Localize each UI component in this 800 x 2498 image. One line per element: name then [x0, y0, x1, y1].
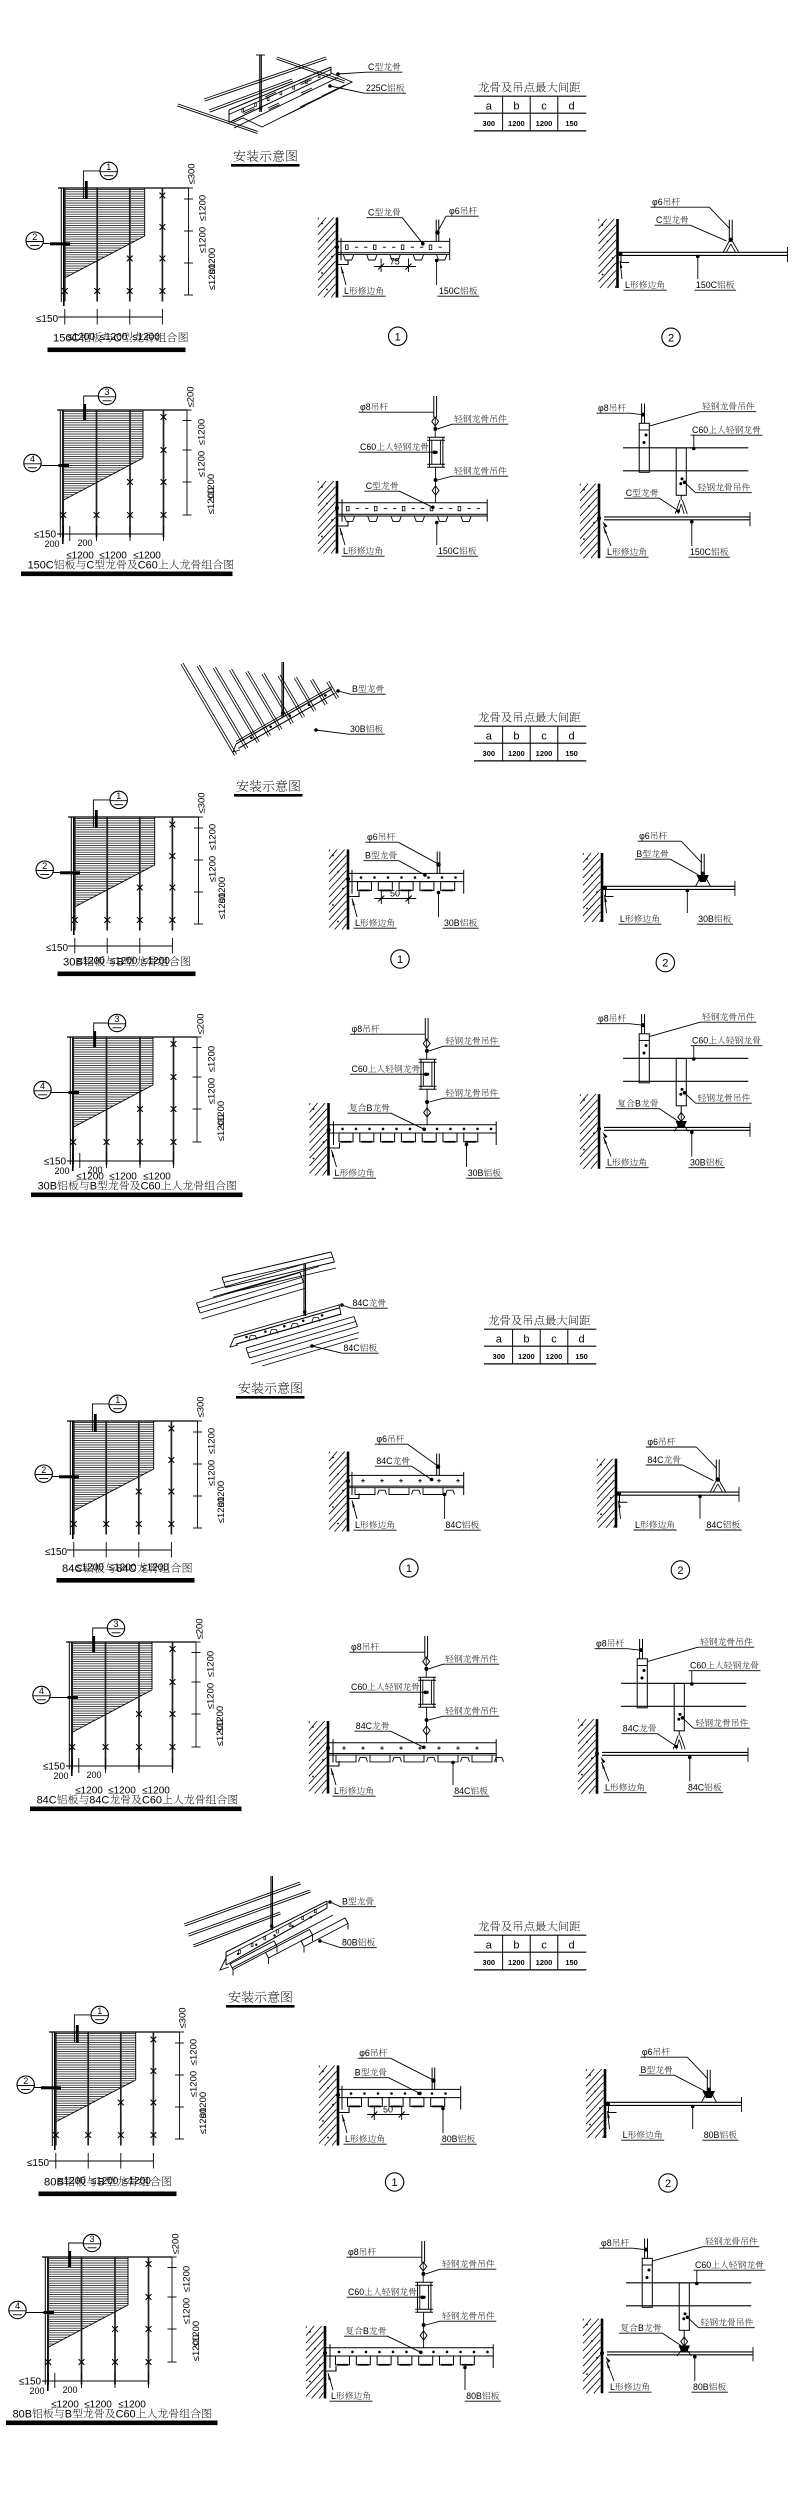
svg-text:150: 150	[565, 119, 578, 128]
svg-text:L: L	[343, 546, 348, 556]
svg-text:≤1200: ≤1200	[181, 2298, 192, 2324]
svg-text:c: c	[551, 1334, 557, 1346]
svg-text:3: 3	[114, 1014, 119, 1024]
svg-text:84C: 84C	[356, 1721, 373, 1731]
svg-text:≤1200: ≤1200	[216, 1497, 227, 1523]
svg-text:1: 1	[116, 791, 121, 801]
svg-text:≤200: ≤200	[195, 1013, 206, 1034]
svg-text:≤300: ≤300	[177, 2007, 188, 2028]
svg-text:B: B	[636, 849, 642, 859]
svg-text:φ6: φ6	[642, 2047, 653, 2057]
svg-text:200: 200	[63, 2385, 78, 2395]
svg-text:φ8: φ8	[596, 1639, 607, 1649]
svg-text:≤300: ≤300	[186, 163, 197, 184]
svg-text:d: d	[569, 731, 575, 743]
svg-text:30B: 30B	[690, 1158, 706, 1168]
svg-text:a: a	[496, 1334, 503, 1346]
svg-text:φ6: φ6	[367, 832, 378, 842]
svg-text:L: L	[623, 2130, 628, 2140]
svg-text:300: 300	[493, 1352, 506, 1361]
svg-text:3: 3	[113, 1619, 118, 1629]
svg-text:d: d	[569, 101, 575, 113]
svg-text:30B: 30B	[444, 918, 460, 928]
svg-text:1: 1	[106, 162, 111, 172]
svg-text:2: 2	[677, 1565, 683, 1577]
svg-text:30B: 30B	[38, 1181, 57, 1193]
svg-text:200: 200	[45, 539, 60, 549]
svg-text:150C: 150C	[696, 280, 718, 290]
svg-text:L: L	[355, 918, 360, 928]
svg-text:1: 1	[395, 331, 401, 343]
svg-text:c: c	[541, 101, 547, 113]
svg-text:1: 1	[97, 2006, 102, 2016]
svg-text:1200: 1200	[536, 119, 553, 128]
svg-text:≤200: ≤200	[194, 1618, 205, 1639]
svg-text:b: b	[513, 101, 519, 113]
svg-text:φ6: φ6	[376, 1434, 387, 1444]
svg-text:≤1200: ≤1200	[181, 2266, 192, 2292]
svg-text:L: L	[607, 1158, 612, 1168]
svg-text:b: b	[513, 731, 519, 743]
svg-text:200: 200	[78, 538, 93, 548]
svg-text:L: L	[334, 1786, 339, 1796]
svg-text:φ8: φ8	[360, 402, 371, 412]
svg-text:200: 200	[54, 1771, 69, 1781]
svg-text:1: 1	[115, 1395, 120, 1405]
svg-text:80B: 80B	[13, 2409, 32, 2421]
svg-text:84C: 84C	[623, 1724, 640, 1734]
svg-text:≤1200: ≤1200	[205, 1651, 216, 1677]
svg-text:≤1200: ≤1200	[196, 419, 207, 445]
svg-text:L: L	[610, 2382, 615, 2392]
svg-text:84C: 84C	[454, 1786, 471, 1796]
svg-text:80B: 80B	[466, 2391, 482, 2401]
svg-text:2: 2	[668, 332, 674, 344]
svg-text:80B: 80B	[704, 2130, 720, 2140]
svg-text:2: 2	[665, 2178, 671, 2190]
svg-text:φ8: φ8	[601, 2238, 612, 2248]
svg-text:1200: 1200	[508, 1958, 525, 1967]
svg-text:φ6: φ6	[647, 1437, 658, 1447]
svg-text:80B: 80B	[44, 2177, 64, 2189]
svg-text:84C: 84C	[62, 1563, 83, 1575]
svg-text:≤1200: ≤1200	[188, 2039, 199, 2065]
svg-text:B: B	[352, 684, 358, 694]
svg-text:1200: 1200	[508, 749, 525, 758]
svg-text:50: 50	[383, 2105, 393, 2115]
svg-text:a: a	[486, 101, 493, 113]
svg-text:2: 2	[42, 861, 47, 871]
svg-text:L: L	[355, 1520, 360, 1530]
svg-text:150C: 150C	[439, 286, 461, 296]
svg-text:150C: 150C	[53, 333, 80, 345]
svg-text:φ8: φ8	[352, 1024, 363, 1034]
svg-text:≤1200: ≤1200	[109, 1172, 137, 1183]
svg-text:c: c	[541, 1940, 547, 1952]
svg-text:50: 50	[390, 889, 400, 899]
svg-text:B: B	[65, 2409, 72, 2421]
svg-text:B: B	[367, 1103, 373, 1113]
svg-text:≤1200: ≤1200	[205, 1683, 216, 1709]
svg-text:150C: 150C	[690, 547, 712, 557]
svg-text:L: L	[607, 547, 612, 557]
svg-text:150: 150	[565, 749, 578, 758]
svg-text:30B: 30B	[468, 1168, 484, 1178]
svg-text:≤1200: ≤1200	[217, 893, 228, 919]
svg-text:≤1200: ≤1200	[142, 956, 170, 967]
svg-text:C60: C60	[690, 1661, 706, 1671]
svg-text:84C: 84C	[647, 1455, 664, 1465]
svg-text:φ8: φ8	[348, 2247, 359, 2257]
svg-text:C60: C60	[141, 1181, 161, 1193]
svg-text:1200: 1200	[508, 119, 525, 128]
svg-text:200: 200	[30, 2386, 45, 2396]
svg-text:φ6: φ6	[449, 206, 460, 216]
svg-text:B: B	[638, 2323, 644, 2333]
svg-text:200: 200	[55, 1166, 70, 1176]
svg-text:300: 300	[483, 1958, 496, 1967]
svg-text:225C: 225C	[366, 83, 388, 93]
svg-text:C60: C60	[352, 1064, 368, 1074]
svg-text:84C: 84C	[446, 1520, 463, 1530]
svg-text:B: B	[98, 2177, 105, 2189]
svg-text:L: L	[344, 286, 349, 296]
svg-text:300: 300	[483, 749, 496, 758]
svg-text:B: B	[90, 1181, 97, 1193]
svg-text:C: C	[366, 481, 373, 491]
svg-text:≤1200: ≤1200	[206, 1046, 217, 1072]
svg-text:≤150: ≤150	[46, 943, 69, 954]
svg-text:1200: 1200	[518, 1352, 535, 1361]
svg-text:3: 3	[104, 387, 109, 397]
svg-text:4: 4	[40, 1081, 45, 1091]
svg-text:C: C	[656, 215, 663, 225]
svg-text:B: B	[641, 2065, 647, 2075]
svg-text:B: B	[363, 2326, 369, 2336]
svg-text:C: C	[368, 62, 375, 72]
svg-text:150C: 150C	[438, 546, 460, 556]
svg-text:1: 1	[406, 1563, 412, 1575]
svg-text:≤300: ≤300	[196, 792, 207, 813]
svg-text:≤150: ≤150	[36, 314, 59, 325]
svg-text:80B: 80B	[442, 2134, 458, 2144]
svg-text:≤1200: ≤1200	[84, 2400, 112, 2411]
svg-text:C: C	[368, 208, 375, 218]
svg-text:C60: C60	[695, 2260, 711, 2270]
svg-text:B: B	[355, 2068, 361, 2078]
svg-text:30B: 30B	[63, 957, 83, 969]
svg-text:30B: 30B	[698, 914, 714, 924]
svg-text:≤1200: ≤1200	[123, 2176, 151, 2187]
svg-text:1: 1	[397, 954, 403, 966]
svg-text:80B: 80B	[693, 2382, 709, 2392]
svg-text:1200: 1200	[536, 1958, 553, 1967]
svg-text:C60: C60	[692, 1036, 708, 1046]
svg-text:84C: 84C	[344, 1343, 361, 1353]
svg-text:150C: 150C	[28, 560, 54, 572]
svg-text:≤1200: ≤1200	[99, 551, 127, 562]
svg-text:L: L	[331, 2391, 336, 2401]
svg-text:φ6: φ6	[359, 2048, 370, 2058]
svg-text:C60: C60	[351, 1682, 367, 1692]
svg-text:B: B	[365, 851, 371, 861]
svg-text:80B: 80B	[342, 1938, 358, 1948]
svg-text:1: 1	[392, 2177, 398, 2189]
svg-text:C60: C60	[138, 560, 158, 572]
svg-text:≤1200: ≤1200	[198, 2108, 209, 2134]
svg-text:84C: 84C	[37, 1795, 57, 1807]
svg-text:2: 2	[32, 232, 37, 242]
svg-text:φ8: φ8	[598, 1014, 609, 1024]
svg-text:φ8: φ8	[351, 1642, 362, 1652]
svg-text:2: 2	[662, 958, 668, 970]
svg-text:L: L	[625, 280, 630, 290]
svg-text:≤1200: ≤1200	[197, 195, 208, 221]
svg-text:d: d	[569, 1940, 575, 1952]
svg-text:≤1200: ≤1200	[206, 1078, 217, 1104]
svg-text:≤150: ≤150	[45, 1547, 68, 1558]
svg-text:≤1200: ≤1200	[215, 1720, 226, 1746]
svg-text:84C: 84C	[688, 1783, 705, 1793]
svg-text:a: a	[486, 731, 493, 743]
svg-text:C: C	[113, 333, 121, 345]
svg-text:L: L	[620, 914, 625, 924]
svg-text:d: d	[579, 1334, 585, 1346]
svg-text:≤1200: ≤1200	[207, 824, 218, 850]
svg-text:B: B	[635, 1099, 641, 1109]
svg-text:30B: 30B	[350, 724, 366, 734]
svg-text:84C: 84C	[707, 1520, 724, 1530]
svg-text:2: 2	[41, 1465, 46, 1475]
svg-text:≤1200: ≤1200	[108, 1786, 136, 1797]
svg-text:B: B	[342, 1897, 348, 1907]
svg-text:L: L	[635, 1520, 640, 1530]
svg-text:a: a	[486, 1940, 493, 1952]
svg-text:≤150: ≤150	[27, 2158, 50, 2169]
svg-text:1200: 1200	[546, 1352, 563, 1361]
svg-text:75: 75	[390, 257, 400, 267]
svg-text:B: B	[117, 957, 124, 969]
svg-text:≤1200: ≤1200	[207, 264, 218, 290]
svg-text:≤1200: ≤1200	[206, 1428, 217, 1454]
svg-text:C60: C60	[142, 1795, 162, 1807]
svg-text:c: c	[541, 731, 547, 743]
svg-text:C: C	[626, 488, 633, 498]
svg-text:b: b	[523, 1334, 529, 1346]
svg-text:C60: C60	[348, 2287, 364, 2297]
svg-text:C60: C60	[360, 442, 376, 452]
svg-text:C60: C60	[692, 425, 708, 435]
svg-text:b: b	[513, 1940, 519, 1952]
svg-text:≤1200: ≤1200	[206, 488, 217, 514]
svg-text:4: 4	[30, 454, 35, 464]
svg-text:C: C	[86, 560, 94, 572]
svg-text:φ8: φ8	[598, 403, 609, 413]
svg-text:150: 150	[565, 1958, 578, 1967]
svg-text:300: 300	[483, 119, 496, 128]
svg-text:φ6: φ6	[652, 197, 663, 207]
svg-text:4: 4	[15, 2301, 20, 2311]
svg-text:≤200: ≤200	[185, 386, 196, 407]
svg-text:L: L	[345, 2134, 350, 2144]
svg-text:≤300: ≤300	[195, 1396, 206, 1417]
svg-text:84C: 84C	[376, 1456, 393, 1466]
svg-text:84C: 84C	[353, 1298, 370, 1308]
svg-text:≤1200: ≤1200	[216, 1115, 227, 1141]
svg-text:4: 4	[39, 1686, 44, 1696]
svg-text:3: 3	[89, 2234, 94, 2244]
svg-text:200: 200	[87, 1770, 102, 1780]
svg-text:≤200: ≤200	[170, 2233, 181, 2254]
svg-text:150: 150	[575, 1352, 588, 1361]
svg-text:φ6: φ6	[639, 831, 650, 841]
svg-text:1200: 1200	[536, 749, 553, 758]
svg-text:84C: 84C	[116, 1563, 137, 1575]
svg-text:84C: 84C	[89, 1795, 109, 1807]
svg-text:≤1200: ≤1200	[196, 451, 207, 477]
svg-text:2: 2	[23, 2076, 28, 2086]
svg-text:C60: C60	[116, 2409, 136, 2421]
svg-text:L: L	[335, 1168, 340, 1178]
svg-text:L: L	[605, 1783, 610, 1793]
svg-text:≤1200: ≤1200	[191, 2335, 202, 2361]
